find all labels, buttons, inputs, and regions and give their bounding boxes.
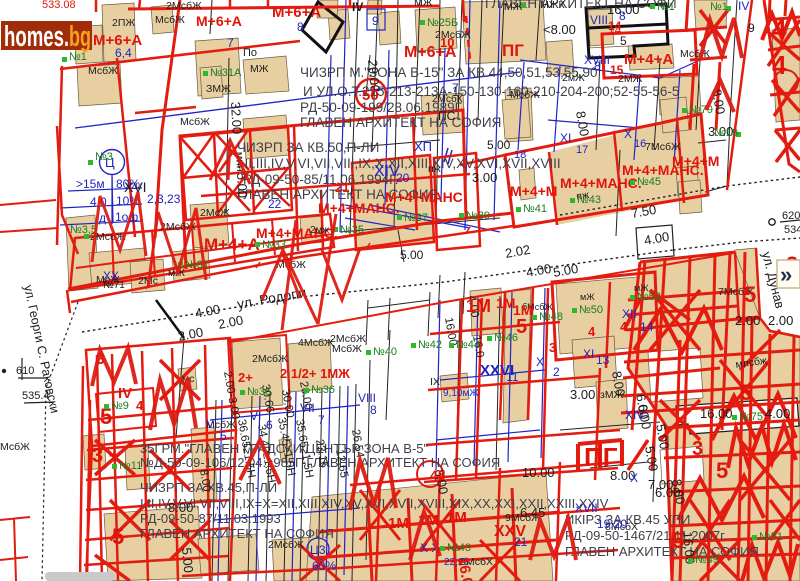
svg-text:32.00: 32.00	[228, 101, 245, 134]
svg-text:15: 15	[610, 63, 624, 77]
svg-text:2: 2	[553, 365, 560, 379]
svg-text:XI: XI	[583, 347, 594, 361]
svg-text:620: 620	[782, 210, 800, 222]
svg-text:533.08: 533.08	[42, 0, 76, 11]
svg-text:ГЛАВЕН АРХИТЕКТ НА СОФИЯ: ГЛАВЕН АРХИТЕКТ НА СОФИЯ	[300, 115, 501, 130]
svg-text:ПГ: ПГ	[502, 41, 524, 60]
svg-text:7: 7	[370, 81, 377, 95]
svg-text:МсбЖ: МсбЖ	[680, 48, 710, 60]
svg-text:2,3,23: 2,3,23	[147, 192, 181, 206]
svg-text:2.00: 2.00	[768, 313, 793, 328]
svg-text:10: 10	[440, 35, 454, 50]
svg-text:пж: пж	[428, 163, 441, 175]
svg-text:ХП: ХП	[414, 139, 432, 154]
svg-text:1М: 1М	[466, 296, 491, 316]
svg-text:21: 21	[335, 180, 349, 195]
svg-text:5.00: 5.00	[179, 547, 196, 574]
svg-text:№37: №37	[404, 212, 428, 224]
svg-text:№3,5: №3,5	[70, 224, 97, 236]
svg-text:7: 7	[318, 413, 325, 427]
svg-text:№25Б: №25Б	[427, 17, 458, 29]
svg-text:7МсбЖ: 7МсбЖ	[645, 141, 681, 153]
svg-text:5: 5	[112, 524, 124, 549]
svg-text:610: 610	[16, 365, 34, 377]
svg-text:>15м: >15м	[76, 177, 105, 191]
svg-text:4: 4	[136, 398, 144, 413]
svg-text:3.00: 3.00	[570, 387, 595, 402]
svg-text:МсбЖ: МсбЖ	[332, 343, 362, 355]
svg-text:5: 5	[620, 34, 627, 48]
svg-text:М+6+А: М+6+А	[272, 4, 321, 21]
svg-text:2МсбЖ: 2МсбЖ	[252, 353, 288, 365]
svg-text:5: 5	[716, 458, 728, 483]
svg-text:8: 8	[297, 20, 304, 34]
svg-text:<8.00: <8.00	[543, 22, 576, 37]
svg-text:VI: VI	[250, 409, 261, 423]
svg-text:IV: IV	[738, 0, 749, 13]
svg-text:№36: №36	[311, 384, 335, 396]
svg-text:18: 18	[514, 149, 526, 161]
svg-text:5: 5	[220, 429, 227, 443]
svg-text:8: 8	[370, 403, 377, 417]
svg-text:№41: №41	[523, 203, 547, 215]
svg-text:3: 3	[549, 340, 556, 355]
svg-text:60%: 60%	[312, 559, 336, 573]
svg-text:зМЖ: зМЖ	[600, 389, 624, 401]
svg-text:№43: №43	[447, 542, 471, 554]
svg-text:XIV: XIV	[374, 163, 400, 180]
svg-text:№39: №39	[466, 210, 490, 222]
svg-text:5: 5	[740, 380, 752, 405]
svg-text:2мЖ: 2мЖ	[562, 72, 585, 84]
svg-text:1М: 1М	[388, 515, 409, 532]
svg-text:ПГ: ПГ	[584, 442, 618, 472]
svg-text:4: 4	[772, 14, 787, 44]
svg-text:РД-09-50-87/11.03.1993: РД-09-50-87/11.03.1993	[140, 511, 281, 526]
svg-text:XXVI: XXVI	[480, 362, 514, 379]
svg-text:№40: №40	[373, 346, 397, 358]
svg-text:2+: 2+	[238, 370, 253, 385]
svg-text:Х: Х	[624, 127, 632, 141]
svg-text:535.4: 535.4	[22, 390, 50, 402]
svg-text:ЧИЗРП ЗА КВ.50,П-ЛИ: ЧИЗРП ЗА КВ.50,П-ЛИ	[237, 140, 379, 155]
svg-text:МЖК: МЖК	[540, 0, 565, 11]
svg-text:ЧИЗРП М."ЗОНА В-15" ЗА КВ.44,5: ЧИЗРП М."ЗОНА В-15" ЗА КВ.44,50,51,53,55…	[300, 65, 598, 80]
svg-text:ПС: ПС	[438, 109, 456, 123]
svg-text:XVII: XVII	[575, 501, 598, 515]
svg-text:1М: 1М	[513, 302, 532, 318]
svg-text:6.00: 6.00	[655, 485, 680, 500]
svg-text:4: 4	[772, 50, 787, 80]
svg-text:X: X	[630, 471, 638, 485]
svg-text:№19: №19	[714, 127, 738, 139]
svg-text:№51: №51	[759, 531, 783, 543]
svg-text:V: V	[206, 417, 214, 431]
svg-text:5.00: 5.00	[400, 248, 424, 262]
svg-text:IV: IV	[352, 0, 363, 14]
svg-text:№35: №35	[340, 224, 364, 236]
svg-text:ГЛАВЕН АРХИТЕКТ НА СОФИЯ: ГЛАВЕН АРХИТЕКТ НА СОФИЯ	[140, 526, 334, 541]
svg-text:19,20: 19,20	[597, 517, 627, 531]
svg-text:10.00: 10.00	[522, 465, 555, 480]
svg-text:4: 4	[588, 324, 596, 339]
svg-text:4МсбЖ: 4МсбЖ	[298, 337, 334, 349]
svg-text:2мж: 2мж	[310, 225, 329, 236]
svg-text:45: 45	[430, 467, 446, 483]
svg-text:9: 9	[748, 21, 755, 35]
svg-text:№52: №52	[637, 291, 661, 303]
svg-text:МсбЖ: МсбЖ	[155, 14, 185, 26]
svg-text:5: 5	[744, 282, 756, 307]
svg-text:.bg: .bg	[64, 21, 91, 53]
svg-text:2ПЖ: 2ПЖ	[112, 17, 135, 29]
svg-text:4.00: 4.00	[765, 406, 790, 421]
svg-text:ХХ: ХХ	[103, 269, 119, 283]
svg-text:№1: №1	[657, 1, 675, 13]
svg-text:XIV: XIV	[625, 408, 644, 422]
svg-text:9,10мЖ: 9,10мЖ	[443, 388, 479, 399]
svg-text:ГЛАВЕН АРХИТЕКТ НА СОФИЯ: ГЛАВЕН АРХИТЕКТ НА СОФИЯ	[565, 544, 759, 559]
svg-text:»: »	[780, 262, 792, 287]
svg-text:№44: №44	[456, 339, 480, 351]
svg-text:РД-09-50-1467/21.11.2007г.: РД-09-50-1467/21.11.2007г.	[565, 528, 727, 543]
svg-text:XVI: XVI	[124, 179, 147, 195]
svg-text:М+6+А: М+6+А	[196, 13, 242, 29]
svg-text:И УЛ.О.Т.215-213-213А-150-130-: И УЛ.О.Т.215-213-213А-150-130-160-210-20…	[303, 84, 679, 99]
svg-text:№9: №9	[111, 400, 129, 412]
svg-text:№3: №3	[95, 151, 113, 163]
svg-text:XI: XI	[560, 131, 571, 145]
svg-text:Ц3: Ц3	[310, 543, 326, 557]
svg-text:МсбЖ: МсбЖ	[88, 65, 118, 77]
svg-text:3 +: 3 +	[92, 445, 120, 467]
svg-text:№42: №42	[418, 339, 442, 351]
svg-text:homes: homes	[4, 21, 64, 53]
svg-text:№31А: №31А	[210, 67, 242, 79]
svg-text:мЖ: мЖ	[580, 292, 595, 302]
svg-text:XXV: XXV	[494, 523, 526, 540]
svg-text:М+4+М: М+4+М	[672, 153, 719, 169]
svg-text:МЖ: МЖ	[504, 1, 523, 13]
svg-text:22: 22	[268, 197, 282, 211]
svg-text:VIII: VIII	[590, 13, 608, 27]
svg-text:VII: VII	[300, 401, 315, 415]
svg-text:М+4+МАНС: М+4+МАНС	[385, 189, 463, 205]
svg-text:7: 7	[452, 81, 459, 95]
svg-text:МсбЖ: МсбЖ	[180, 116, 210, 128]
svg-text:3.00: 3.00	[472, 170, 497, 185]
svg-text:14: 14	[640, 320, 654, 334]
svg-text:№36: №36	[247, 386, 271, 398]
svg-text:2МсбЖ: 2МсбЖ	[166, 0, 202, 12]
svg-text:1М: 1М	[446, 509, 467, 526]
svg-text:2.00: 2.00	[735, 313, 760, 328]
svg-text:16: 16	[634, 138, 646, 150]
svg-text:М+4+М: М+4+М	[510, 183, 557, 199]
svg-text:7: 7	[227, 36, 234, 50]
svg-text:МсбЖ: МсбЖ	[510, 89, 540, 101]
svg-text:№50: №50	[579, 304, 603, 316]
svg-text:№45: №45	[637, 176, 661, 188]
svg-text:4: 4	[620, 319, 628, 334]
svg-text:№1: №1	[710, 1, 728, 13]
svg-text:№75: №75	[739, 411, 763, 423]
svg-text:6: 6	[266, 418, 273, 432]
svg-text:17: 17	[576, 144, 588, 156]
svg-text:МсбЖ: МсбЖ	[0, 441, 30, 453]
svg-text:М+4+А: М+4+А	[624, 51, 673, 68]
svg-text:8.00: 8.00	[168, 500, 193, 515]
svg-text:9: 9	[372, 14, 379, 28]
svg-text:ЗМЖ: ЗМЖ	[206, 83, 231, 95]
svg-text:Х: Х	[536, 355, 544, 369]
svg-text:№11: №11	[119, 460, 142, 472]
svg-text:2МсбЖ: 2МсбЖ	[268, 539, 304, 551]
svg-text:XVIII: XVIII	[584, 53, 610, 67]
svg-text:№43: №43	[577, 194, 601, 206]
svg-text:М+4+А: М+4+А	[204, 235, 260, 254]
svg-text:2МсЖ: 2МсЖ	[200, 207, 230, 219]
svg-text:14: 14	[608, 19, 622, 33]
svg-text:IX: IX	[430, 376, 440, 388]
svg-text:№46: №46	[494, 332, 518, 344]
svg-text:М+6+А: М+6+А	[93, 32, 142, 49]
svg-text:По: По	[243, 47, 257, 59]
svg-text:13: 13	[596, 353, 610, 367]
svg-text:5.00: 5.00	[487, 138, 511, 152]
svg-text:МЖ: МЖ	[414, 0, 433, 9]
svg-text:2 1/2+ 1МЖ: 2 1/2+ 1МЖ	[280, 366, 350, 381]
svg-text:16.00: 16.00	[700, 406, 733, 421]
svg-text:МЖ: МЖ	[250, 63, 269, 75]
svg-text:№49: №49	[695, 554, 719, 566]
svg-text:1оф: 1оф	[115, 210, 138, 224]
svg-text:3: 3	[692, 438, 703, 460]
svg-text:№48: №48	[539, 311, 563, 323]
svg-text:5: 5	[672, 528, 684, 553]
svg-text:534: 534	[784, 224, 800, 236]
